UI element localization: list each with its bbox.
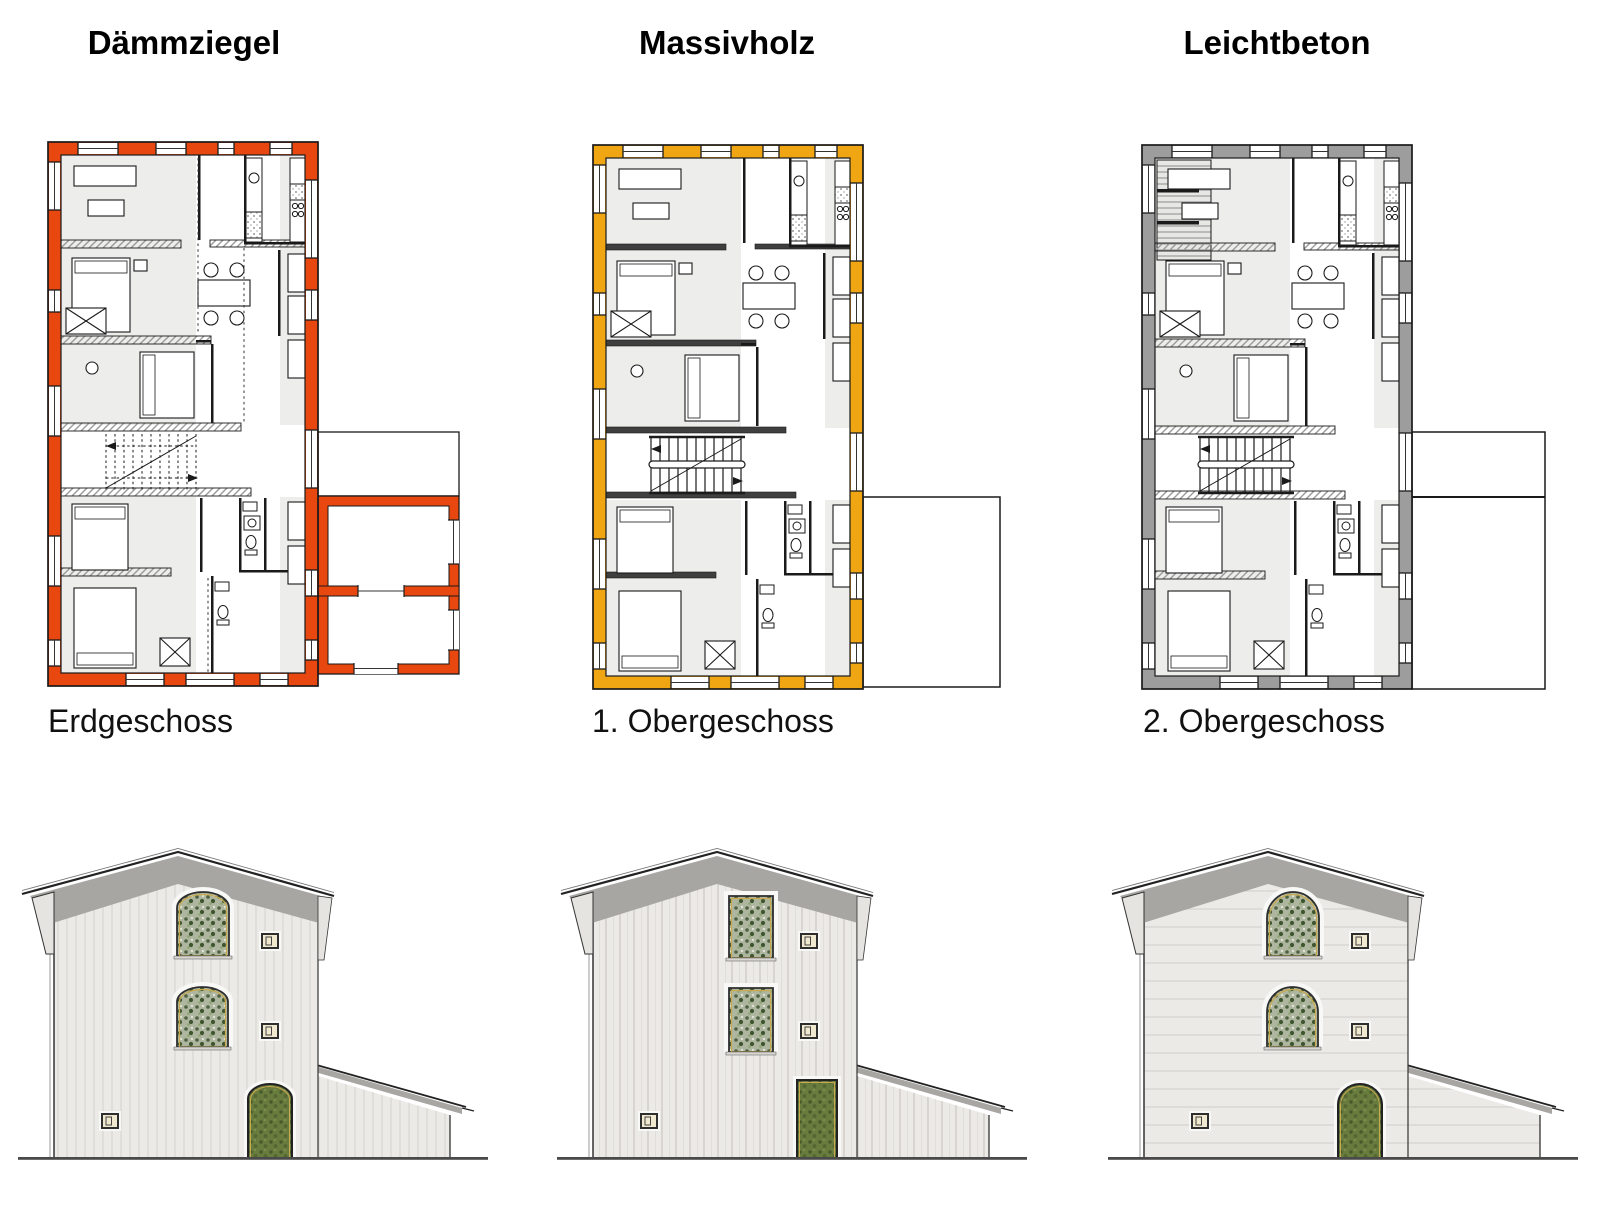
annex <box>863 497 1000 687</box>
floor-label-obergeschoss-1: 1. Obergeschoss <box>592 703 834 740</box>
annex <box>1412 432 1545 689</box>
architecture-comparison-sheet: Dämmziegel Massivholz Leichtbeton Erdges… <box>0 0 1600 1206</box>
column-title-leichtbeton: Leichtbeton <box>1142 24 1412 62</box>
upper-window <box>724 891 778 961</box>
small-window-lower-left <box>638 1111 660 1131</box>
elevation-leichtbeton <box>1108 828 1578 1166</box>
small-window-middle <box>1349 1021 1371 1041</box>
column-title-massivholz: Massivholz <box>593 24 861 62</box>
floor-plan-0 <box>48 142 459 686</box>
middle-window <box>172 982 233 1050</box>
middle-window <box>1262 982 1323 1050</box>
elevation-2 <box>1108 849 1578 1160</box>
floor-label-obergeschoss-2: 2. Obergeschoss <box>1143 703 1385 740</box>
upper-window <box>172 887 234 959</box>
side-extension <box>313 1064 474 1158</box>
elevation-massivholz <box>557 828 1027 1166</box>
floor-plan-1 <box>593 145 1000 689</box>
elevation-1 <box>557 849 1027 1160</box>
column-title-daemmziegel: Dämmziegel <box>48 24 320 62</box>
side-extension <box>1403 1064 1564 1158</box>
small-window-upper <box>798 931 820 951</box>
floor-plan-obergeschoss-1 <box>591 143 1011 699</box>
floor-plan-obergeschoss-2 <box>1140 143 1560 699</box>
floor-plan-erdgeschoss <box>46 140 466 696</box>
entrance-door <box>244 1080 296 1158</box>
ground-line <box>18 1157 488 1160</box>
entrance-door <box>793 1076 841 1158</box>
small-window-lower-left <box>99 1111 121 1131</box>
small-window-upper <box>1349 931 1371 951</box>
small-window-middle <box>798 1021 820 1041</box>
floor-plan-2 <box>1142 145 1545 689</box>
ground-line <box>557 1157 1027 1160</box>
elevation-daemmziegel <box>18 828 488 1166</box>
small-window-middle <box>259 1021 281 1041</box>
middle-window <box>724 983 778 1055</box>
floor-label-erdgeschoss: Erdgeschoss <box>48 703 233 740</box>
annex <box>318 432 459 674</box>
small-window-lower-left <box>1189 1111 1211 1131</box>
entrance-door <box>1334 1080 1386 1158</box>
elevation-0 <box>18 849 488 1160</box>
side-extension <box>852 1064 1013 1158</box>
ground-line <box>1108 1157 1578 1160</box>
upper-window <box>1262 887 1324 959</box>
small-window-upper <box>259 931 281 951</box>
